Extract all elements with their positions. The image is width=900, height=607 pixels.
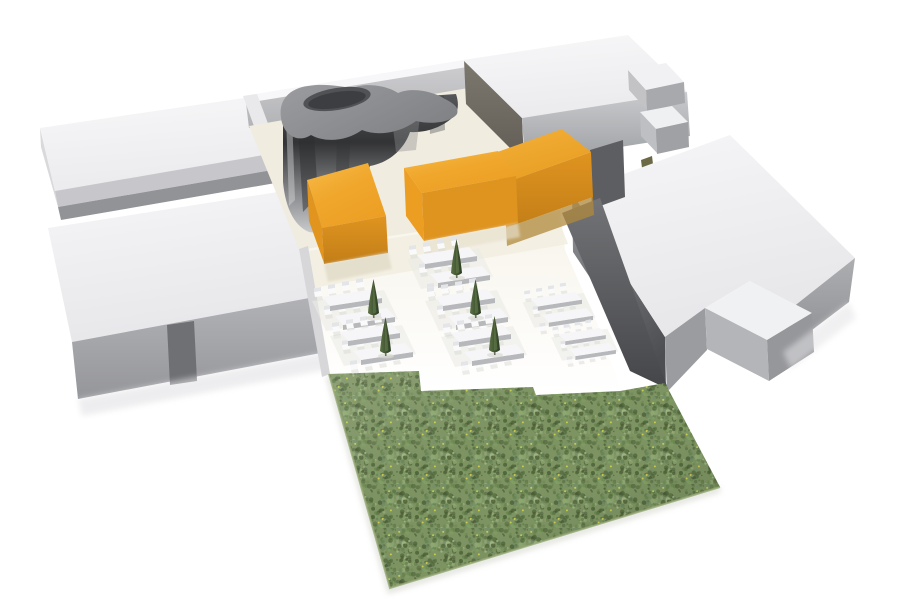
chair-seat: [360, 320, 368, 326]
chair-seat: [553, 330, 559, 335]
chair-seat: [423, 246, 431, 252]
chair-seat: [524, 294, 531, 299]
chair-seat: [536, 291, 543, 296]
chair-seat: [455, 285, 463, 291]
chair-seat: [586, 323, 592, 328]
chair-seat: [451, 240, 459, 246]
chair-seat: [461, 365, 469, 371]
chair-seat: [328, 288, 336, 294]
slab-sw-notch: [167, 321, 197, 385]
chair-seat: [314, 291, 322, 297]
architectural-massing-render: [0, 0, 900, 607]
chair-seat: [332, 326, 340, 332]
render-canvas: [0, 0, 900, 607]
chair-seat: [560, 286, 567, 291]
chair-seat: [437, 243, 445, 249]
chair-seat: [540, 326, 547, 331]
chair-seat: [441, 288, 449, 294]
chair-seat: [443, 327, 451, 333]
grass-lawn: [329, 371, 720, 590]
grass-light-overlay: [329, 371, 720, 588]
chair-seat: [575, 325, 581, 330]
chair-seat: [471, 321, 479, 327]
chair-seat: [346, 323, 354, 329]
chair-seat: [564, 327, 570, 332]
chair-seat: [350, 364, 358, 370]
chair-seat: [548, 289, 555, 294]
chair-seat: [427, 291, 435, 297]
chair-seat: [356, 282, 364, 288]
gap-wall-upper: [590, 140, 625, 209]
chair-seat: [485, 318, 493, 324]
chair-seat: [457, 324, 465, 330]
chair-seat: [567, 359, 573, 364]
chair-seat: [342, 285, 350, 291]
chair-seat: [409, 249, 417, 255]
